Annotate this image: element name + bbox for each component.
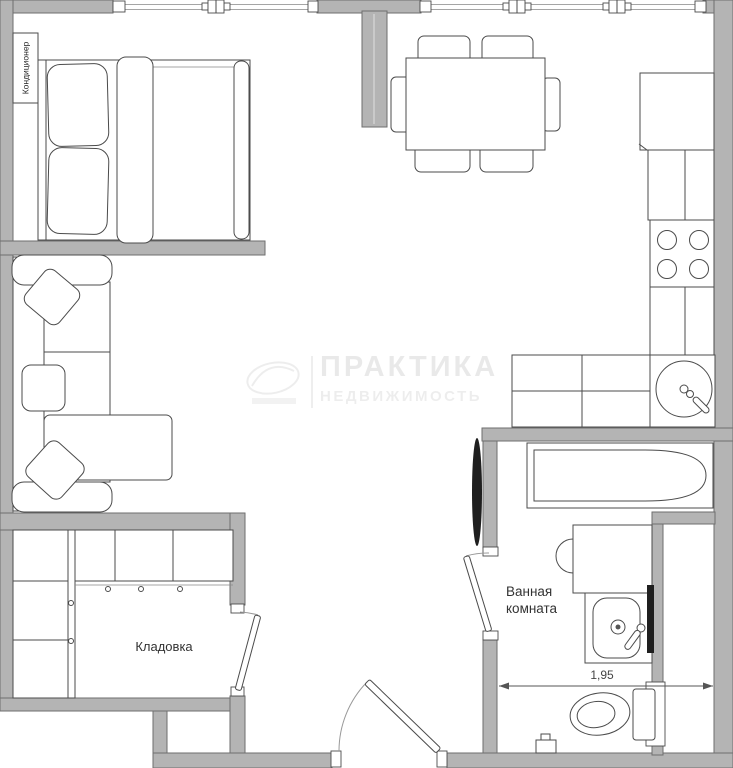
shaft-top-wall [652,512,715,524]
left-wall [0,0,13,711]
kitchen-cabinet [685,150,714,220]
bathroom-top-wall [482,428,733,441]
bath-mirror-strip [647,585,654,653]
air-conditioner-label: Кондиционер [13,33,38,103]
sofa-pillow [22,365,65,411]
bottom-wall-left [153,753,332,768]
toilet-bowl [567,689,632,739]
kitchen-cabinet [650,287,685,355]
storage-room-label: Кладовка [112,639,216,654]
bathtub [527,443,713,508]
storage-door-leaf [235,615,261,691]
bathroom-door-jamb [483,631,498,640]
wardrobe-left-column [13,530,75,698]
bathroom-label: Ванная комната [506,583,557,617]
storage-door [235,612,261,691]
dimension-arrow-right [703,683,713,690]
floor-fixture [536,740,556,753]
entrance-door-arc [339,682,367,751]
watermark-logo [244,356,312,408]
storage-door-arc [240,612,258,615]
bathroom-left-wall-upper [483,441,497,548]
window-end-cap [695,1,706,12]
bottom-wall-right [447,753,733,768]
toilet-tank [633,689,655,740]
dimension-label: 1,95 [574,668,630,682]
bath-sink-drain-center [616,625,621,630]
dimension-line [499,683,713,690]
washing-machine [573,525,652,593]
window-mullion [503,0,531,13]
bedroom-furniture [13,33,250,243]
apartment-floor-plan: Кондиционер ПРАКТИКА НЕДВИЖИМОСТЬ Кладов… [0,0,733,768]
bed-blanket [117,57,153,243]
washing-machine-drum-arc [556,539,573,573]
storage-top-wall [0,513,245,530]
bed-pillow [47,147,109,235]
window-mullion [603,0,631,13]
window-end-cap [420,1,431,12]
right-wall [714,0,733,768]
floor-plan-drawing [0,0,733,768]
entrance-door-jamb [331,751,341,767]
sofa [12,255,172,512]
window-mullion [202,0,230,13]
storage-bottom-wall [0,698,230,711]
bathroom-label-line1: Ванная [506,583,557,600]
door-jambs [231,547,498,767]
kitchen-faucet-base [687,391,694,398]
refrigerator [640,73,714,150]
wall-tv [472,438,482,546]
wardrobe-top-row [75,530,233,581]
air-conditioner-label-box: Кондиционер [13,33,38,103]
dining-set [391,36,560,172]
watermark-title: ПРАКТИКА [320,351,498,384]
top-left-wall [0,0,113,13]
bathroom-left-wall-lower [483,640,497,753]
bed-pillow [47,63,109,147]
window-end-cap [113,1,125,12]
bed-foot-roll [234,61,249,239]
bathroom-door-jamb [483,547,498,556]
dining-table [406,58,545,150]
entrance-door-leaf [365,679,441,753]
dimension-arrow-left [499,683,509,690]
bathroom-door-leaf [463,556,492,632]
wardrobe-handles [69,587,183,644]
bathroom-label-line2: комната [506,600,557,617]
kitchen-cabinet [685,287,714,355]
window-end-cap [308,1,318,12]
storage-room-shelving [13,530,233,698]
entrance-door-jamb [437,751,447,767]
kitchen-cabinet [648,150,685,220]
entrance-door [339,679,441,753]
bathroom-door [463,553,492,632]
watermark-subtitle: НЕДВИЖИМОСТЬ [320,388,482,405]
